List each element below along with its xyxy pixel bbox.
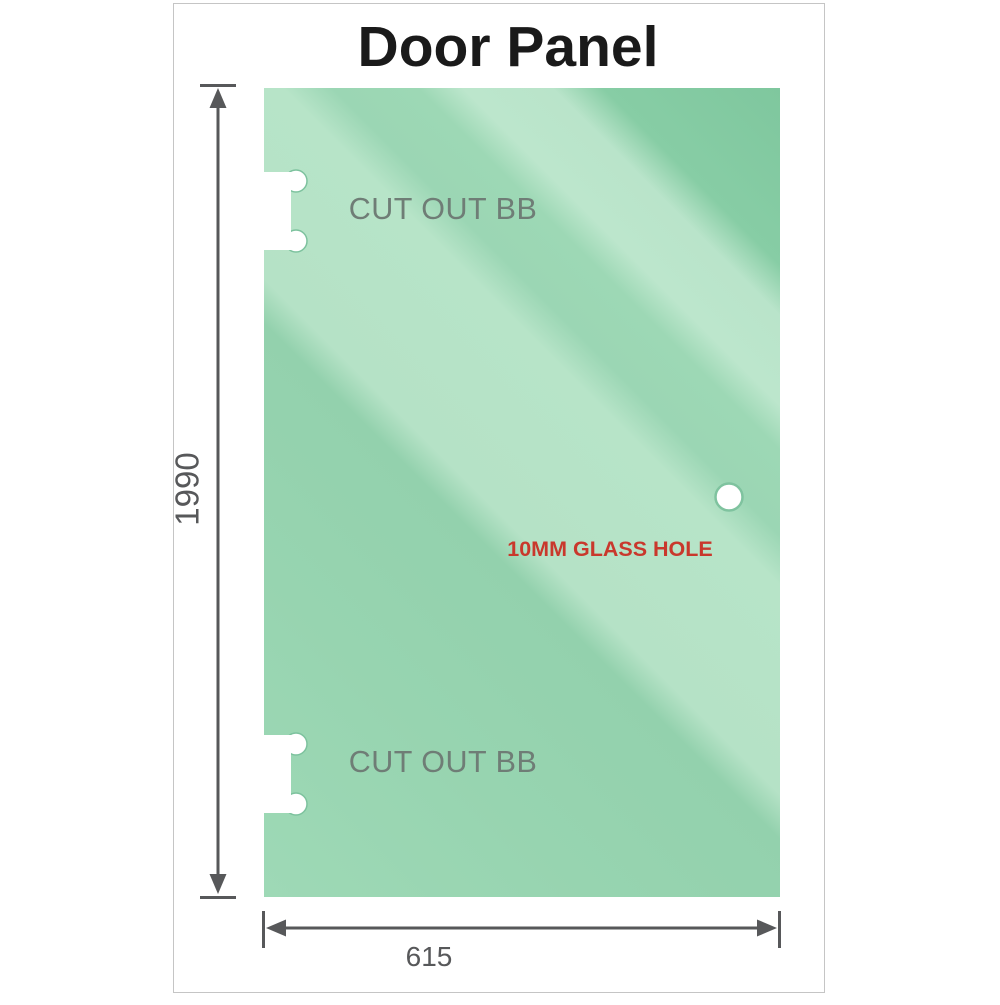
width-dimension-label: 615 bbox=[406, 941, 453, 972]
door-panel-diagram: Door Panel CUT OUT BB CUT OUT BB 10MM GL… bbox=[0, 0, 1000, 1000]
cutout-bottom-label: CUT OUT BB bbox=[349, 745, 538, 779]
glass-hole bbox=[716, 484, 743, 511]
cutout-top-label: CUT OUT BB bbox=[349, 192, 538, 226]
cutout-top-notch bbox=[262, 172, 291, 250]
glass-hole-label: 10MM GLASS HOLE bbox=[507, 537, 712, 561]
diagram-canvas: Door Panel CUT OUT BB CUT OUT BB 10MM GL… bbox=[0, 0, 1000, 1000]
page-title: Door Panel bbox=[358, 15, 659, 79]
cutout-bottom-notch bbox=[262, 735, 291, 813]
height-dimension-label: 1990 bbox=[169, 452, 206, 525]
